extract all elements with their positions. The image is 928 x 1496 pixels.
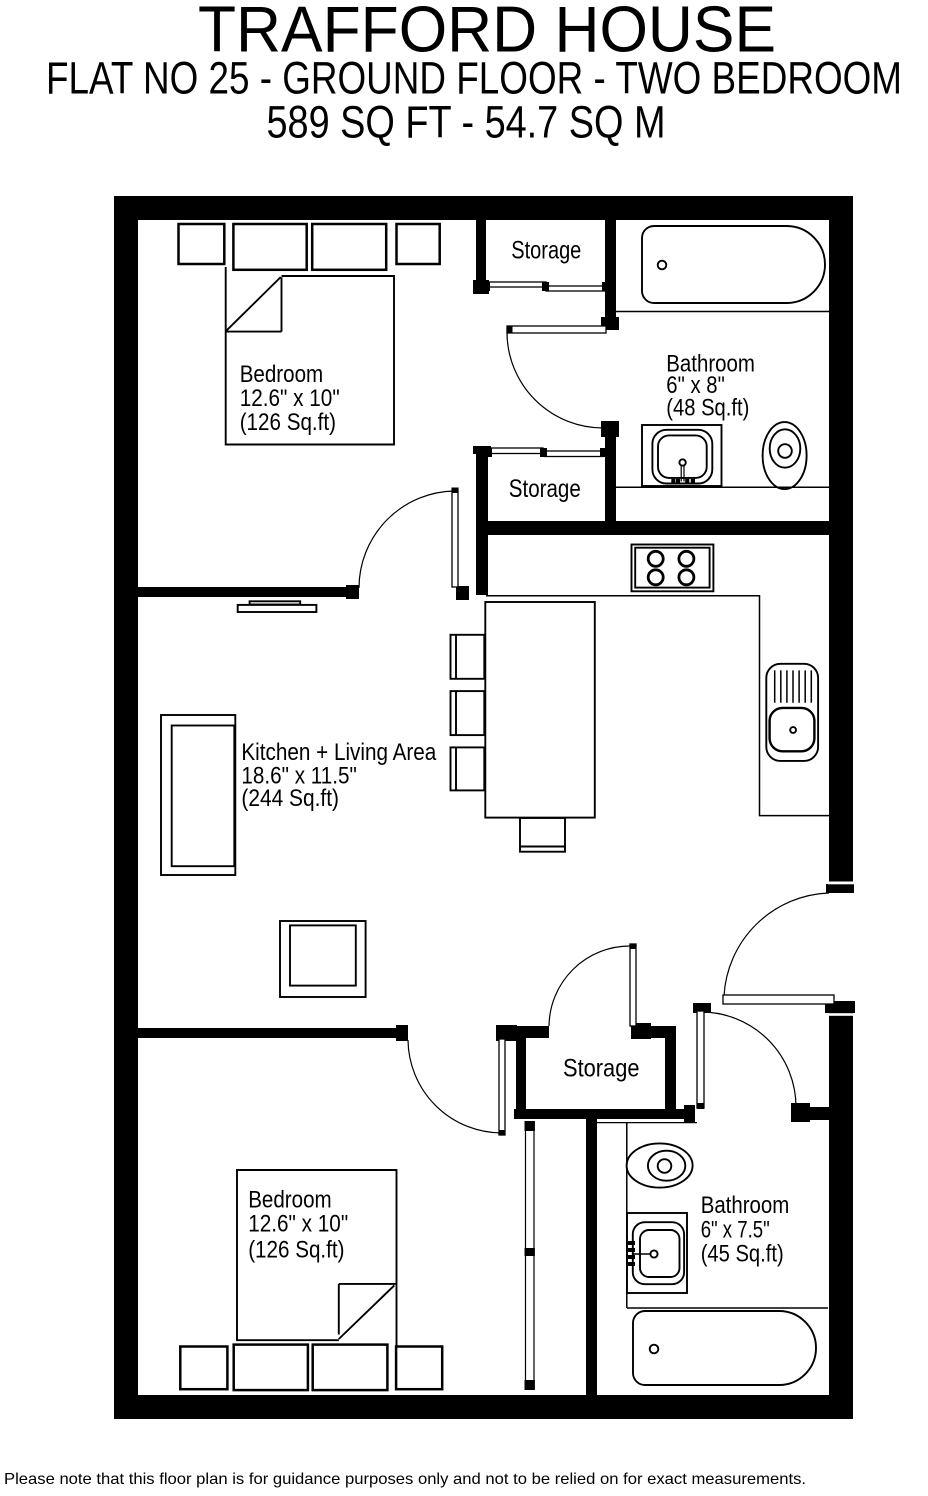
svg-text:(48 Sq.ft): (48 Sq.ft) <box>666 395 749 422</box>
svg-text:Bedroom: Bedroom <box>248 1186 332 1213</box>
svg-text:589 SQ FT - 54.7 SQ M: 589 SQ FT - 54.7 SQ M <box>267 96 666 147</box>
svg-text:6" x 7.5": 6" x 7.5" <box>701 1216 770 1243</box>
svg-text:(126 Sq.ft): (126 Sq.ft) <box>248 1236 344 1263</box>
svg-text:Bathroom: Bathroom <box>701 1192 790 1219</box>
svg-text:(126 Sq.ft): (126 Sq.ft) <box>240 409 336 436</box>
svg-text:Storage: Storage <box>511 236 581 264</box>
svg-text:Storage: Storage <box>509 475 581 503</box>
svg-text:(244 Sq.ft): (244 Sq.ft) <box>241 785 339 812</box>
svg-text:Please note that this floor pl: Please note that this floor plan is for … <box>4 1471 806 1488</box>
svg-text:Storage: Storage <box>563 1055 640 1083</box>
svg-text:(45 Sq.ft): (45 Sq.ft) <box>701 1240 784 1267</box>
svg-text:12.6" x 10": 12.6" x 10" <box>248 1211 348 1238</box>
